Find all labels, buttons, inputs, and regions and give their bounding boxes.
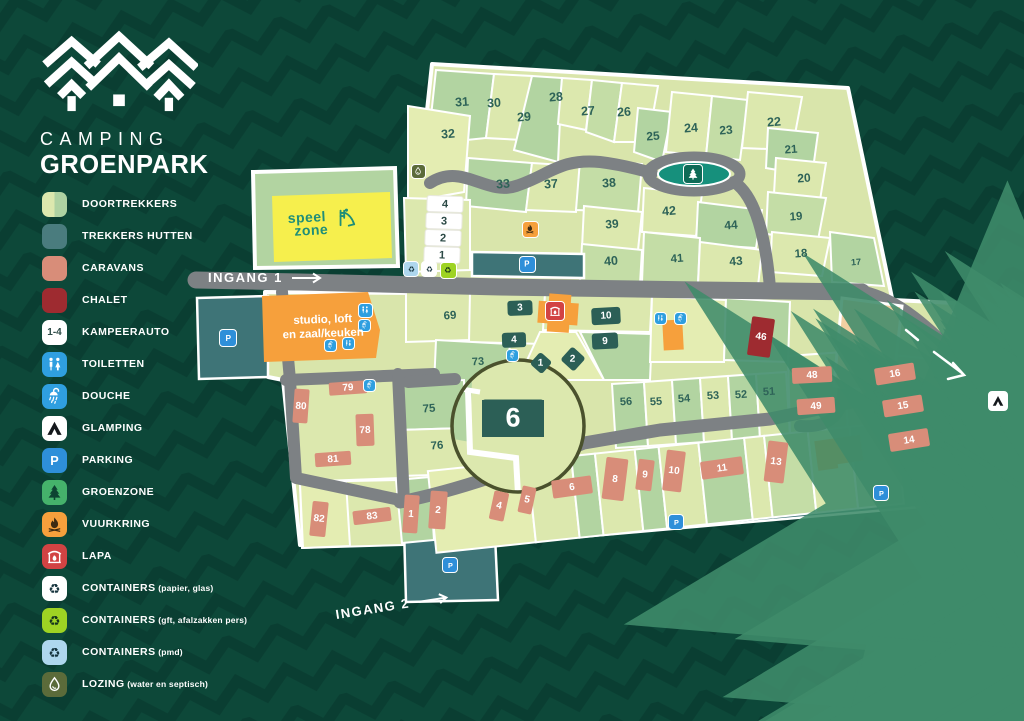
plot-label-23: 23 bbox=[719, 123, 733, 138]
parking-icon: P bbox=[42, 448, 67, 473]
legend-item-toiletten: TOILETTEN bbox=[42, 352, 247, 376]
plot-label-31: 31 bbox=[455, 95, 470, 110]
parking-icon: P bbox=[219, 329, 237, 347]
entrance-1-label: INGANG 1 bbox=[208, 270, 324, 285]
plot-label-54: 54 bbox=[677, 393, 690, 406]
svg-text:P: P bbox=[225, 333, 231, 343]
legend-label: TOILETTEN bbox=[82, 358, 145, 370]
svg-text:P: P bbox=[879, 488, 884, 497]
plot-label-43: 43 bbox=[729, 254, 743, 269]
brand-logo: CAMPING GROENPARK bbox=[40, 26, 205, 180]
legend-label: TREKKERS HUTTEN bbox=[82, 230, 193, 242]
plot-label-25: 25 bbox=[646, 129, 660, 144]
legend-label: CARAVANS bbox=[82, 262, 144, 274]
plot-label-22: 22 bbox=[767, 115, 782, 130]
studio-label: studio, loft en zaal/keuken bbox=[266, 312, 381, 344]
legend-label: CONTAINERS (gft, afalzakken pers) bbox=[82, 614, 247, 626]
legend-label: LAPA bbox=[82, 550, 112, 562]
caravan-2: 2 bbox=[428, 490, 448, 529]
site-badge-3: 3 bbox=[507, 300, 533, 316]
svg-text:P: P bbox=[50, 453, 59, 467]
plot-label-76: 76 bbox=[430, 440, 444, 453]
svg-text:♻: ♻ bbox=[426, 265, 433, 274]
legend-item-containers-12: ♻CONTAINERS (papier, glas) bbox=[42, 576, 247, 600]
legend-item-lapa: LAPA bbox=[42, 544, 247, 568]
parking-icon: P bbox=[519, 256, 536, 273]
shower-icon bbox=[674, 312, 687, 325]
plot-label-24: 24 bbox=[684, 121, 699, 136]
legend-item-vuurkring: VUURKRING bbox=[42, 512, 247, 536]
tent-icon bbox=[988, 391, 1008, 411]
plot-label-17: 17 bbox=[851, 257, 862, 268]
recycle-icon: ♻ bbox=[403, 261, 419, 277]
legend-item-containers-13: ♻CONTAINERS (gft, afalzakken pers) bbox=[42, 608, 247, 632]
svg-text:♻: ♻ bbox=[444, 265, 451, 275]
site-badge-6: 6 bbox=[482, 400, 544, 437]
slide-icon bbox=[333, 204, 361, 232]
caravan-1: 1 bbox=[402, 495, 420, 534]
lapa-icon bbox=[42, 544, 67, 569]
kampeerauto-bay-4: 4 bbox=[427, 196, 463, 212]
parking-icon: P bbox=[442, 557, 458, 573]
shower-icon bbox=[42, 384, 67, 409]
legend-item-parking: PPARKING bbox=[42, 448, 247, 472]
pine-icon bbox=[42, 480, 67, 505]
legend-label: GLAMPING bbox=[82, 422, 143, 434]
plot-label-20: 20 bbox=[797, 171, 811, 186]
plot-label-56: 56 bbox=[619, 396, 632, 409]
plot-label-28: 28 bbox=[549, 90, 564, 105]
plot-label-38: 38 bbox=[602, 176, 617, 191]
color-swatch bbox=[42, 288, 67, 313]
site-badge-4: 4 bbox=[502, 332, 527, 348]
fire-icon bbox=[42, 512, 67, 537]
plot-label-53: 53 bbox=[706, 390, 719, 403]
brand-name-top: CAMPING bbox=[40, 129, 205, 150]
legend-item-chalet: CHALET bbox=[42, 288, 247, 312]
legend-label: DOUCHE bbox=[82, 390, 131, 402]
brand-name-bottom: GROENPARK bbox=[40, 151, 205, 180]
plot-label-40: 40 bbox=[604, 254, 619, 269]
caravan-49: 49 bbox=[796, 397, 835, 416]
legend-item-glamping: GLAMPING bbox=[42, 416, 247, 440]
toilet-icon bbox=[42, 352, 67, 377]
toilet-icon bbox=[654, 312, 667, 325]
plot-label-73: 73 bbox=[471, 356, 484, 369]
plot-label-51: 51 bbox=[762, 386, 775, 399]
lapa-icon bbox=[545, 301, 565, 321]
svg-text:♻: ♻ bbox=[48, 646, 60, 661]
legend-item-lozing-15: LOZING (water en septisch) bbox=[42, 672, 247, 696]
legend-item-doortrekkers: DOORTREKKERS bbox=[42, 192, 247, 216]
shower-icon bbox=[363, 379, 376, 392]
plot-label-69: 69 bbox=[443, 310, 457, 323]
caravan-48: 48 bbox=[792, 366, 833, 384]
legend-sublabel: (papier, glas) bbox=[156, 583, 214, 593]
doortrekkers-swatch bbox=[42, 192, 67, 217]
plot-label-44: 44 bbox=[724, 218, 738, 233]
arrow-right-icon bbox=[290, 272, 324, 284]
kampeerauto-bay-3: 3 bbox=[426, 213, 462, 229]
legend-item-kampeerauto: 1-4KAMPEERAUTO bbox=[42, 320, 247, 344]
recycle-icon: ♻ bbox=[42, 576, 67, 601]
kampeerauto-swatch: 1-4 bbox=[42, 320, 67, 345]
legend: DOORTREKKERSTREKKERS HUTTENCARAVANSCHALE… bbox=[42, 192, 247, 696]
plot-label-27: 27 bbox=[581, 104, 596, 119]
caravan-80: 80 bbox=[292, 389, 309, 424]
legend-sublabel: (pmd) bbox=[156, 647, 183, 657]
svg-text:♻: ♻ bbox=[408, 265, 415, 274]
plot-label-21: 21 bbox=[784, 144, 798, 157]
recycle-icon: ♻ bbox=[440, 262, 457, 279]
svg-text:♻: ♻ bbox=[48, 582, 60, 597]
legend-label: CONTAINERS (papier, glas) bbox=[82, 582, 213, 594]
caravan-79: 79 bbox=[329, 380, 368, 396]
plot-label-52: 52 bbox=[734, 389, 747, 402]
recycle-icon: ♻ bbox=[42, 608, 67, 633]
recycle-icon: ♻ bbox=[421, 261, 437, 277]
legend-item-containers-14: ♻CONTAINERS (pmd) bbox=[42, 640, 247, 664]
caravan-81: 81 bbox=[315, 451, 352, 467]
plot-label-41: 41 bbox=[670, 253, 684, 266]
legend-sublabel: (water en septisch) bbox=[125, 679, 208, 689]
svg-text:♻: ♻ bbox=[48, 614, 60, 629]
tent-icon bbox=[42, 416, 67, 441]
plot-label-33: 33 bbox=[496, 177, 511, 192]
plot-label-29: 29 bbox=[517, 110, 532, 125]
legend-sublabel: (gft, afalzakken pers) bbox=[156, 615, 248, 625]
legend-item-trekkers-hutten: TREKKERS HUTTEN bbox=[42, 224, 247, 248]
drop-icon bbox=[42, 672, 67, 697]
parking-icon: P bbox=[668, 514, 684, 530]
legend-label: KAMPEERAUTO bbox=[82, 326, 170, 338]
legend-label: PARKING bbox=[82, 454, 133, 466]
svg-text:P: P bbox=[674, 517, 679, 526]
plot-label-32: 32 bbox=[441, 127, 456, 142]
legend-label: VUURKRING bbox=[82, 518, 150, 530]
plot-label-18: 18 bbox=[794, 248, 808, 261]
pine-icon bbox=[683, 164, 703, 184]
site-badge-10: 10 bbox=[591, 307, 621, 325]
kampeerauto-bay-2: 2 bbox=[425, 230, 461, 246]
legend-item-groenzone: GROENZONE bbox=[42, 480, 247, 504]
plot-label-75: 75 bbox=[422, 403, 436, 416]
color-swatch bbox=[42, 224, 67, 249]
fire-icon bbox=[522, 221, 539, 238]
legend-label: GROENZONE bbox=[82, 486, 154, 498]
plot-label-37: 37 bbox=[544, 177, 559, 192]
legend-item-douche: DOUCHE bbox=[42, 384, 247, 408]
caravan-78: 78 bbox=[355, 414, 374, 447]
plot-label-39: 39 bbox=[605, 217, 619, 232]
legend-label: CHALET bbox=[82, 294, 128, 306]
camping-groenpark-map: CAMPING GROENPARK DOORTREKKERSTREKKERS H… bbox=[0, 0, 1024, 721]
plot-label-55: 55 bbox=[649, 396, 662, 409]
parking-icon: P bbox=[873, 485, 889, 501]
plot-label-42: 42 bbox=[662, 204, 677, 219]
plot-label-26: 26 bbox=[617, 105, 632, 120]
brand-logo-mark bbox=[40, 26, 198, 118]
color-swatch bbox=[42, 256, 67, 281]
recycle-icon: ♻ bbox=[42, 640, 67, 665]
plot-label-19: 19 bbox=[789, 211, 803, 224]
legend-label: DOORTREKKERS bbox=[82, 198, 177, 210]
svg-text:P: P bbox=[524, 260, 529, 269]
legend-label: LOZING (water en septisch) bbox=[82, 678, 208, 690]
plot-label-30: 30 bbox=[487, 96, 502, 111]
shower-icon bbox=[506, 349, 519, 362]
legend-label: CONTAINERS (pmd) bbox=[82, 646, 183, 658]
site-badge-9: 9 bbox=[592, 332, 619, 349]
svg-text:P: P bbox=[448, 560, 453, 569]
speelzone-label: speel zone bbox=[287, 210, 328, 237]
drop-icon bbox=[411, 164, 426, 179]
